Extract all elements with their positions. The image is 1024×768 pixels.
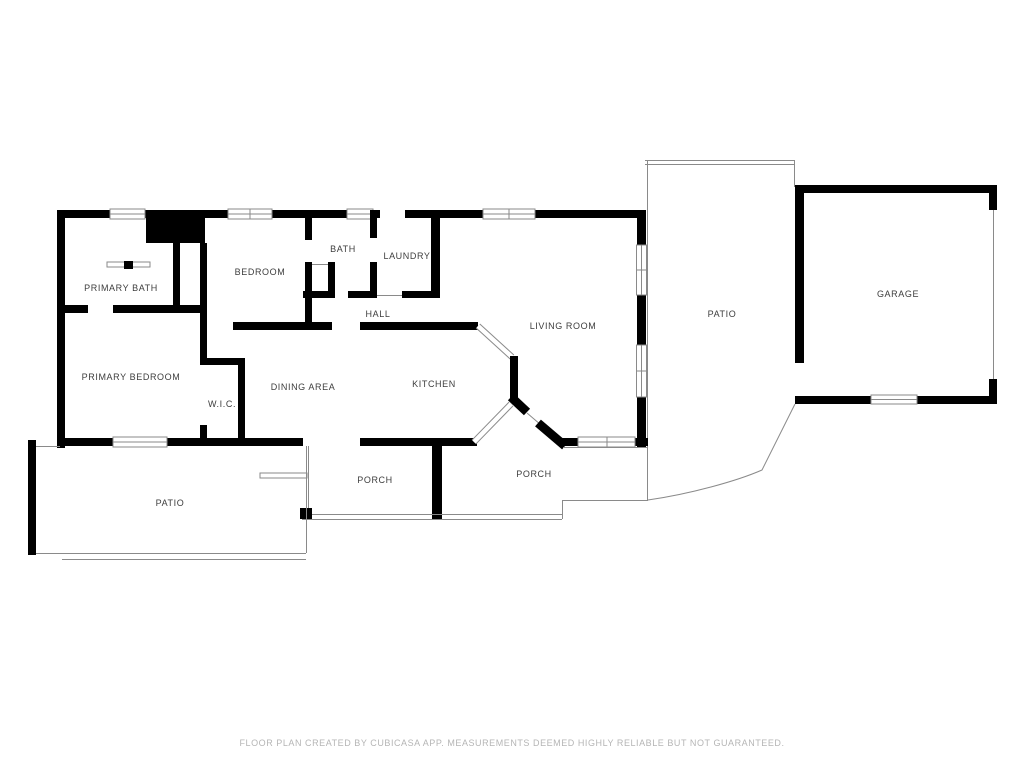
window-living-right-2 bbox=[637, 345, 647, 397]
window-bedroom bbox=[228, 209, 272, 219]
room-label-bath: BATH bbox=[330, 244, 356, 254]
patio-left-wall bbox=[28, 440, 36, 555]
room-label-wic: W.I.C. bbox=[208, 399, 236, 409]
window-living-bottom bbox=[578, 437, 635, 447]
room-label-patio-left: PATIO bbox=[156, 498, 185, 508]
window-primary-bath bbox=[110, 209, 145, 219]
room-label-porch-right: PORCH bbox=[516, 469, 552, 479]
patio-right-outline bbox=[645, 160, 795, 500]
room-label-porch-left: PORCH bbox=[357, 475, 393, 485]
footer-disclaimer: FLOOR PLAN CREATED BY CUBICASA APP. MEAS… bbox=[239, 738, 784, 748]
floor-plan-drawing bbox=[0, 0, 1024, 768]
primary-bath-fixture bbox=[107, 261, 150, 269]
window-living-top bbox=[483, 209, 535, 219]
room-label-laundry: LAUNDRY bbox=[383, 251, 430, 261]
interior-walls bbox=[57, 210, 478, 446]
garage-window bbox=[871, 395, 917, 404]
room-label-primary-bath: PRIMARY BATH bbox=[84, 283, 158, 293]
room-label-patio-right: PATIO bbox=[708, 309, 737, 319]
room-label-dining-area: DINING AREA bbox=[271, 382, 336, 392]
kitchen-bay bbox=[474, 326, 565, 446]
room-label-hall: HALL bbox=[366, 309, 391, 319]
room-label-kitchen: KITCHEN bbox=[412, 379, 456, 389]
window-bath bbox=[347, 209, 373, 219]
porch-outline bbox=[300, 438, 648, 520]
room-label-living-room: LIVING ROOM bbox=[530, 321, 597, 331]
window-living-right-1 bbox=[637, 245, 647, 295]
room-label-garage: GARAGE bbox=[877, 289, 919, 299]
floor-plan-page: PRIMARY BATH PRIMARY BEDROOM W.I.C. BEDR… bbox=[0, 0, 1024, 768]
window-primary-bedroom bbox=[113, 437, 167, 447]
room-label-bedroom: BEDROOM bbox=[235, 267, 286, 277]
solid-block bbox=[146, 210, 205, 243]
porch-divider-wall bbox=[432, 438, 442, 520]
room-label-primary-bedroom: PRIMARY BEDROOM bbox=[82, 372, 181, 382]
